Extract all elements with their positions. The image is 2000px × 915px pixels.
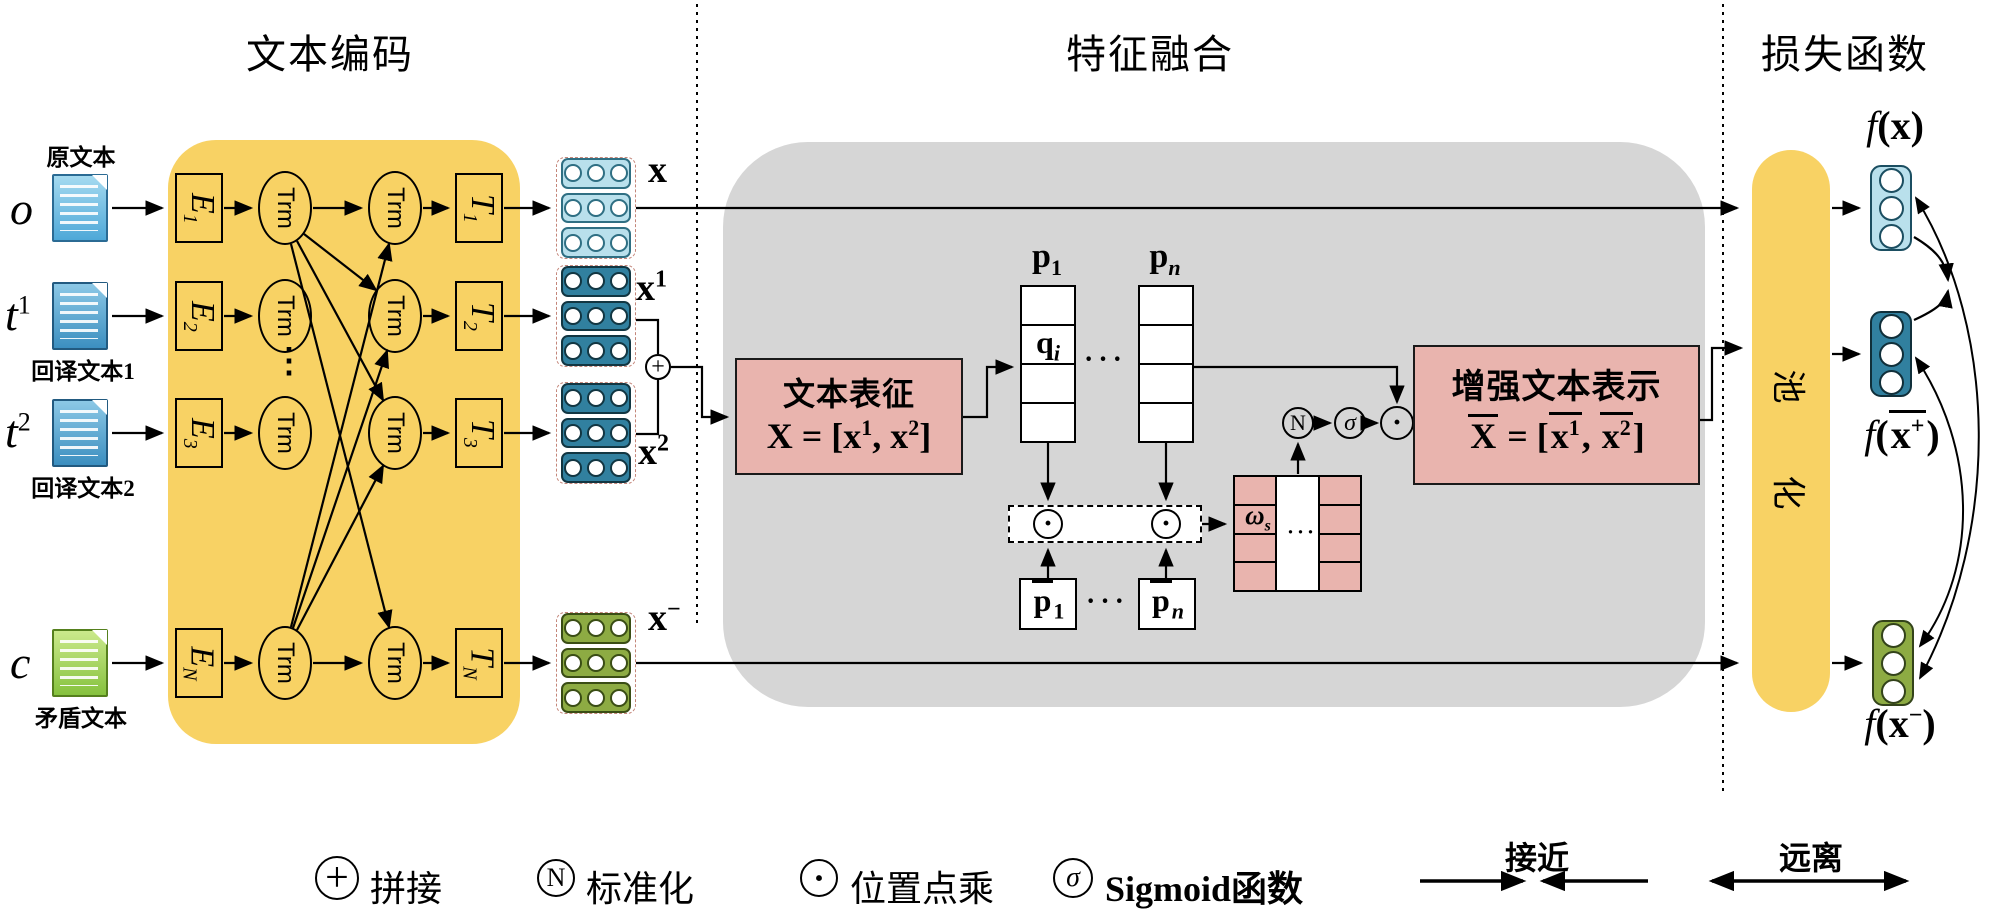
transformer-block: Trm — [368, 626, 422, 700]
ellipsis-in-weight-grid: ··· — [1287, 520, 1317, 545]
input-label-contradiction: 矛盾文本 — [26, 699, 136, 733]
vector-label-x1: x1 — [636, 266, 667, 310]
ellipsis-between-p-columns: ··· — [1084, 344, 1127, 376]
pbar1-box: p1 — [1019, 578, 1077, 630]
legend-label-close: 接近 — [1472, 833, 1602, 879]
output-box-t2: T2 — [455, 281, 503, 351]
document-icon-original — [52, 174, 108, 242]
section-title-text-encoding: 文本编码 — [180, 22, 480, 80]
legend-label-far: 远离 — [1746, 833, 1876, 879]
vector-label-x: x — [648, 148, 667, 192]
legend-label-normalize: 标准化 — [586, 860, 694, 912]
input-label-backtranslated-2: 回译文本2 — [18, 469, 148, 503]
f-x-positive-label: f(x+) — [1832, 410, 1972, 458]
pooling-label-char1: 池 — [1752, 356, 1830, 416]
input-var-t2: t2 — [5, 405, 31, 458]
input-var-c: c — [10, 636, 30, 689]
embedding-box-e3: E3 — [175, 398, 223, 468]
input-label-original-text: 原文本 — [26, 138, 136, 172]
output-box-tn: TN — [455, 628, 503, 698]
f-x-label: f(x) — [1840, 102, 1950, 149]
sigmoid-icon: σ — [1053, 858, 1093, 898]
document-icon-backtranslated-2 — [52, 399, 108, 467]
embedding-grid-x — [556, 157, 636, 259]
model-architecture-figure: 文本编码 特征融合 损失函数 池 化 原文本 o t1 回译文本1 t2 回译文… — [0, 0, 2000, 915]
legend-label-sigmoid: Sigmoid函数 — [1105, 860, 1303, 912]
output-capsule-negative — [1872, 620, 1914, 706]
pooling-label-char2: 化 — [1752, 462, 1830, 522]
normalize-icon: N — [537, 859, 575, 897]
document-icon-contradiction — [52, 629, 108, 697]
output-box-t1: T1 — [455, 173, 503, 243]
ellipsis-between-pbar-boxes: ··· — [1086, 586, 1129, 618]
omega-s-label: ωs — [1238, 500, 1278, 535]
transformer-block: Trm — [368, 279, 422, 353]
output-capsule-positive — [1870, 311, 1912, 397]
input-var-o: o — [10, 182, 33, 235]
document-icon-backtranslated-1 — [52, 282, 108, 350]
embedding-grid-x2 — [556, 382, 636, 484]
dot-product-icon: · — [1033, 509, 1063, 539]
section-title-feature-fusion: 特征融合 — [1000, 22, 1300, 80]
input-label-backtranslated-1: 回译文本1 — [18, 352, 148, 386]
sigmoid-icon: σ — [1334, 407, 1366, 439]
vertical-ellipsis: ⋮ — [272, 345, 306, 379]
output-capsule-anchor — [1870, 165, 1912, 251]
qi-label: qi — [1022, 324, 1074, 366]
enhanced-representation-box: 增强文本表示 X = [x1, x2] — [1413, 345, 1700, 485]
embedding-grid-xneg — [556, 612, 636, 714]
text-representation-box: 文本表征 X = [x1, x2] — [735, 358, 963, 475]
pbarn-box: pn — [1138, 578, 1196, 630]
p1-column-label: p1 — [1014, 238, 1080, 281]
dot-product-icon: · — [800, 859, 838, 897]
transformer-block: Trm — [258, 279, 312, 353]
concat-icon: + — [315, 856, 359, 900]
pn-column — [1138, 285, 1194, 443]
transformer-block: Trm — [368, 396, 422, 470]
dot-product-icon: · — [1380, 406, 1414, 440]
f-x-negative-label: f(x−) — [1835, 700, 1965, 747]
embedding-box-e1: E1 — [175, 173, 223, 243]
section-title-loss-function: 损失函数 — [1695, 22, 1995, 80]
transformer-block: Trm — [368, 171, 422, 245]
vector-label-x2: x2 — [638, 430, 669, 474]
embedding-box-e2: E2 — [175, 281, 223, 351]
legend-label-dot-product: 位置点乘 — [850, 860, 994, 912]
transformer-block: Trm — [258, 626, 312, 700]
vector-label-xneg: x− — [648, 596, 681, 640]
concat-icon: + — [645, 354, 671, 380]
transformer-block: Trm — [258, 396, 312, 470]
legend-label-concat: 拼接 — [370, 860, 442, 912]
embedding-grid-x1 — [556, 265, 636, 367]
output-box-t3: T3 — [455, 398, 503, 468]
normalize-icon: N — [1282, 407, 1314, 439]
dot-product-icon: · — [1151, 509, 1181, 539]
transformer-block: Trm — [258, 171, 312, 245]
pn-column-label: pn — [1132, 238, 1198, 281]
input-var-t1: t1 — [5, 288, 31, 341]
embedding-box-en: EN — [175, 628, 223, 698]
pooling-panel — [1752, 150, 1830, 712]
